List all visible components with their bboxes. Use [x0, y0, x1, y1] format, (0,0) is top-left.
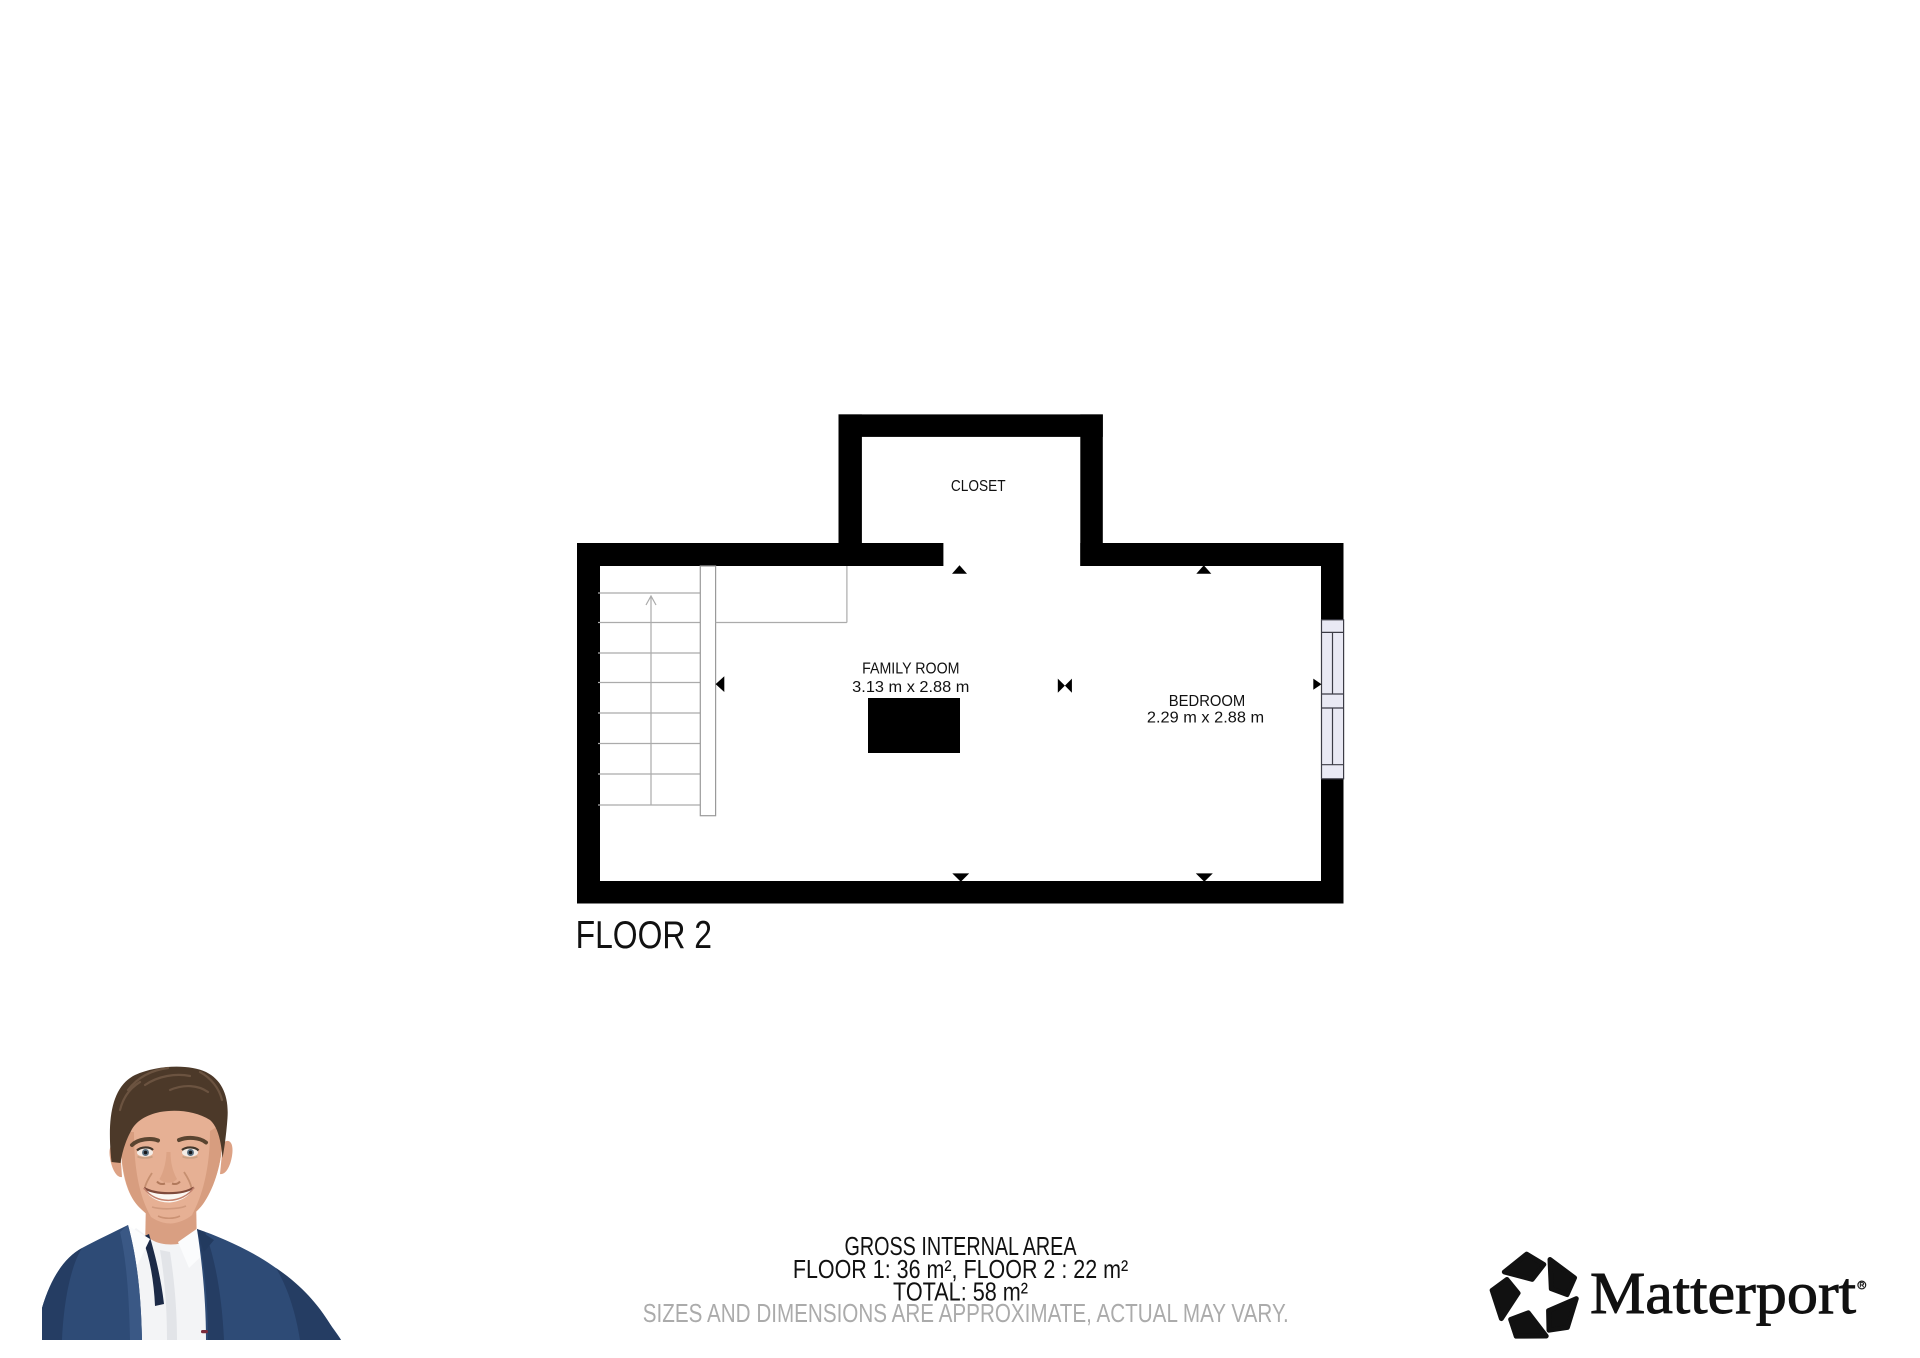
svg-text:FLOOR 2: FLOOR 2 — [576, 914, 712, 957]
svg-text:BEDROOM: BEDROOM — [1169, 693, 1246, 710]
svg-text:CLOSET: CLOSET — [951, 478, 1006, 495]
svg-text:FAMILY ROOM: FAMILY ROOM — [862, 661, 959, 678]
svg-text:3.13 m x 2.88 m: 3.13 m x 2.88 m — [852, 679, 969, 696]
svg-text:Matterport: Matterport — [1590, 1261, 1856, 1326]
svg-text:2.29 m x 2.88 m: 2.29 m x 2.88 m — [1147, 709, 1264, 726]
svg-text:SIZES AND DIMENSIONS ARE APPRO: SIZES AND DIMENSIONS ARE APPROXIMATE, AC… — [643, 1298, 1289, 1328]
